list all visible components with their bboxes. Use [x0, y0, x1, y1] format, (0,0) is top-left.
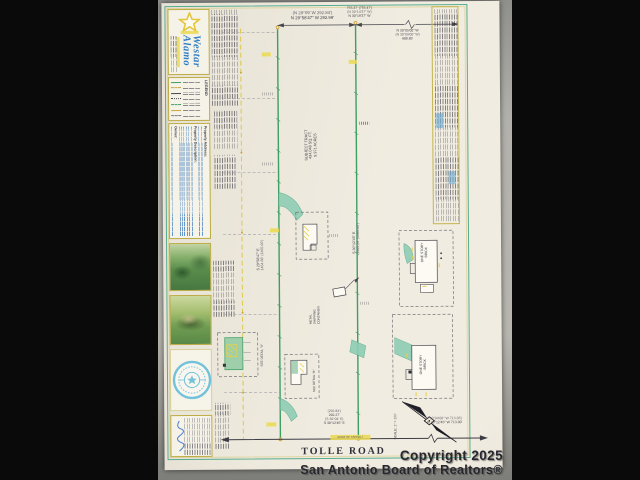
container-label: METAL SHIPPING CONTAINER: [309, 324, 353, 336]
micro-annotation: [262, 162, 274, 165]
see-detail-b-label: SEE DETAIL "B": [313, 392, 347, 396]
driveways: [279, 191, 415, 421]
scale-label: SCALE: 1" = 100': [393, 439, 433, 443]
highlight-mark: [349, 60, 357, 64]
micro-annotation: [329, 234, 339, 237]
notes-highlight-blue: [449, 171, 456, 184]
micro-annotation: [359, 122, 369, 125]
notes-highlight-blue: [436, 113, 443, 128]
one-story-line2: BRICK: [423, 343, 427, 385]
copyright-line1: Copyright 2025: [300, 448, 503, 463]
see-detail-a-label: SEE DETAIL "A": [261, 366, 295, 370]
bearing-bottom-middle: (292.84') 292.27' (S 30°04' E) S 30°12'4…: [312, 409, 356, 426]
utility-line: [240, 29, 245, 440]
bearing-center-line: S 30°12'45" E 1465.20' (1465.00'): [352, 253, 444, 262]
edge-of-asphalt-label: EDGE OF ASPHALT: [330, 434, 370, 440]
bearing-distance: 680.85': [386, 36, 430, 40]
container-label-line3: CONTAINER: [316, 280, 320, 324]
bearing-distance: 1464.88' (1465.00'): [260, 196, 265, 270]
micro-annotation: [262, 92, 274, 95]
notes-smalltext-col2: [446, 9, 458, 221]
metal-container-shape: [333, 287, 346, 297]
survey-document: Westar Alamo LEGEND Property Addre: [161, 1, 502, 470]
bearing-top-middle: 755.37' (755.47') (N 30°14'37" W) N 30°1…: [339, 6, 379, 18]
one-story-line2: BRICK: [424, 231, 428, 273]
highlight-mark: [266, 422, 276, 426]
micro-annotation: [360, 302, 370, 305]
bearing-measured: N 30°19'37" W: [339, 14, 379, 18]
west-boundary-line: [276, 26, 283, 441]
copyright-watermark: Copyright 2025 San Antonio Board of Real…: [300, 448, 503, 478]
bearing-measured: S 30°12'45" E: [312, 421, 356, 425]
subject-tract-line3: 9.971 ACRES: [313, 116, 318, 174]
one-story-brick-label-2: ONE STORY BRICK: [419, 385, 461, 393]
survey-notes-column: [431, 6, 460, 224]
mls-photo-of-survey: Westar Alamo LEGEND Property Addre: [0, 0, 640, 480]
one-story-brick-label-1: ONE STORY BRICK: [420, 273, 462, 281]
bearing-top-right: N 30°05'00" W (N 30°09'00" W) 680.85': [386, 28, 430, 40]
subject-tract-label: SUBJECT TRACT 434,048 SQ. FT. 9.971 ACRE…: [305, 174, 363, 188]
bearing-west-line: S 29°58'47" E 1464.88' (1465.00'): [256, 270, 330, 279]
highlight-mark: [262, 52, 271, 56]
copyright-line2: San Antonio Board of Realtors®: [300, 463, 503, 478]
highlight-mark: [270, 228, 279, 232]
